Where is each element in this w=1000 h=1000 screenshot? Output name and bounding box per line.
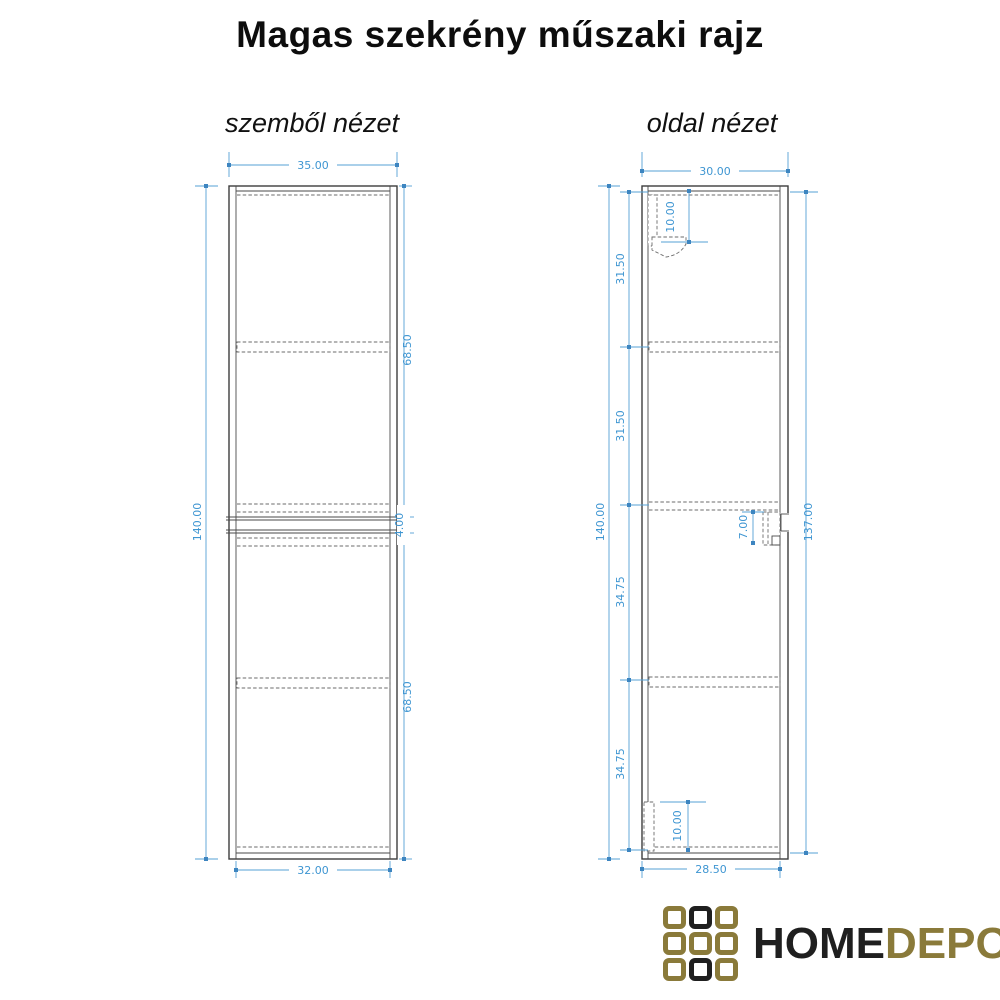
side-dim-bottom-rail: 10.00: [671, 810, 684, 842]
front-dim-height: 140.00: [191, 503, 204, 542]
front-dim-upper-section: 68.50: [401, 334, 414, 366]
side-shelf-upper: [649, 342, 780, 352]
logo-square: [715, 906, 738, 929]
side-handle-profile: [763, 512, 780, 545]
logo-square: [689, 932, 712, 955]
logo-square: [689, 958, 712, 981]
front-dim-lower-section: 68.50: [401, 681, 414, 713]
side-dim-height: 140.00: [594, 503, 607, 542]
logo-wordmark: HOMEDEPO: [753, 922, 1000, 966]
front-shelf-lower: [237, 678, 390, 688]
front-dim-bottom-width: 32.00: [297, 864, 329, 877]
logo-square: [715, 932, 738, 955]
logo-square: [689, 906, 712, 929]
side-right-wall-notch: [781, 513, 791, 532]
logo-square: [663, 958, 686, 981]
side-dim-top-bracket: 10.00: [664, 201, 677, 233]
cabinet-drawing-svg: 35.00 140.00 68.50 4.00 68.50: [0, 0, 1000, 1000]
side-wall-bracket: [652, 237, 686, 257]
front-shelf-upper: [237, 342, 390, 352]
logo-square: [715, 958, 738, 981]
logo-text-home: HOME: [753, 919, 885, 968]
side-dim-segment-1: 31.50: [614, 253, 627, 285]
logo-text-depo: DEPO: [885, 919, 1000, 968]
logo-squares-icon: [663, 906, 738, 981]
technical-drawing-page: Magas szekrény műszaki rajz szemből néze…: [0, 0, 1000, 1000]
side-shelf-lower: [649, 677, 780, 687]
front-dim-top-width: 35.00: [297, 159, 329, 172]
side-dim-segment-2: 31.50: [614, 410, 627, 442]
front-view-drawing: [226, 186, 397, 859]
logo-square: [663, 932, 686, 955]
front-dim-middle-gap: 4.00: [393, 513, 406, 538]
side-dim-segment-4: 34.75: [614, 748, 627, 780]
front-view-dimensions: 35.00 140.00 68.50 4.00 68.50: [191, 152, 414, 878]
homedepo-logo: HOMEDEPO: [663, 906, 1000, 981]
side-bottom-rail: [644, 802, 654, 851]
side-dim-right-height: 137.00: [802, 503, 815, 542]
front-door-junction: [226, 504, 397, 546]
side-dim-top-width: 30.00: [699, 165, 731, 178]
side-dim-bottom-width: 28.50: [695, 863, 727, 876]
side-view-drawing: [642, 186, 791, 859]
side-dim-handle-offset: 7.00: [737, 515, 750, 540]
logo-square: [663, 906, 686, 929]
side-dim-segment-3: 34.75: [614, 576, 627, 608]
